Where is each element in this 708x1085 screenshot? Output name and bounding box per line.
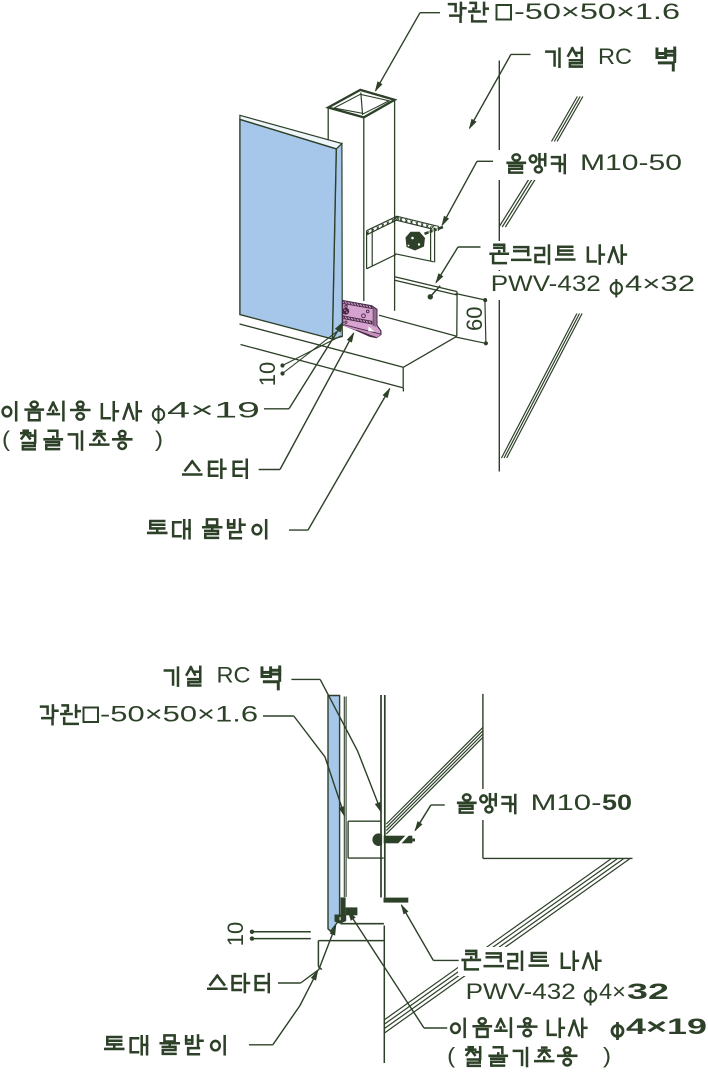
svg-text:4×19: 4×19 xyxy=(167,397,260,422)
svg-text:4×: 4× xyxy=(599,979,626,1004)
svg-text:(: ( xyxy=(2,427,11,452)
svg-text:(: ( xyxy=(447,1043,456,1068)
svg-text:PWV-432: PWV-432 xyxy=(491,271,601,296)
svg-text:PWV-432: PWV-432 xyxy=(466,979,576,1004)
svg-text:): ) xyxy=(603,1043,611,1068)
svg-text:-50×50×1.6: -50×50×1.6 xyxy=(100,701,258,726)
svg-text:RC: RC xyxy=(598,44,632,69)
svg-text:M10-50: M10-50 xyxy=(580,150,682,175)
svg-text:): ) xyxy=(155,427,163,452)
svg-text:50: 50 xyxy=(602,790,632,815)
svg-text:32: 32 xyxy=(627,979,669,1004)
svg-text:10: 10 xyxy=(255,362,280,386)
svg-text:60: 60 xyxy=(462,307,487,331)
svg-text:10: 10 xyxy=(223,922,248,946)
svg-text:4×32: 4×32 xyxy=(625,271,695,296)
svg-text:M10-: M10- xyxy=(531,790,602,815)
svg-text:RC: RC xyxy=(217,663,251,688)
svg-text:-50×50×1.6: -50×50×1.6 xyxy=(514,0,680,24)
svg-text:4×19: 4×19 xyxy=(626,1014,707,1039)
